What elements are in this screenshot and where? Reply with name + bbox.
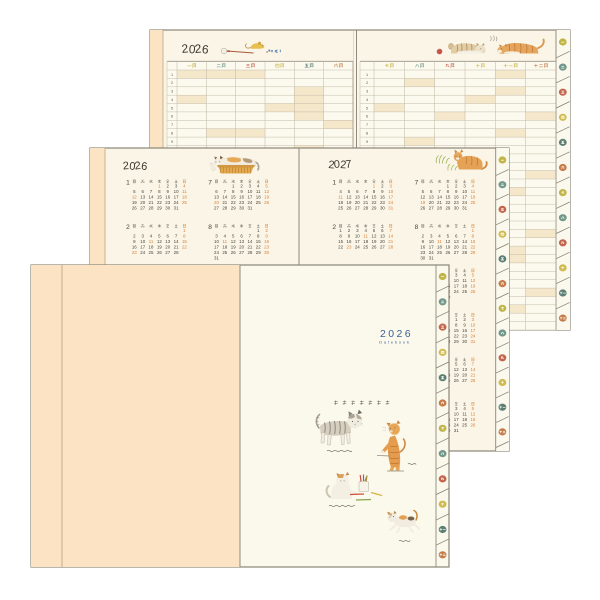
svg-text:16: 16 bbox=[454, 195, 459, 200]
svg-text:15: 15 bbox=[231, 195, 236, 200]
svg-text:10: 10 bbox=[214, 239, 219, 244]
svg-text:21: 21 bbox=[462, 244, 467, 249]
svg-text:24: 24 bbox=[454, 422, 459, 427]
svg-text:7: 7 bbox=[415, 180, 419, 187]
svg-text:15: 15 bbox=[157, 195, 162, 200]
svg-text:24: 24 bbox=[247, 200, 252, 205]
svg-text:21: 21 bbox=[149, 200, 154, 205]
svg-text:14: 14 bbox=[222, 195, 227, 200]
svg-text:16: 16 bbox=[462, 328, 467, 333]
svg-text:27: 27 bbox=[429, 205, 434, 210]
svg-text:18: 18 bbox=[462, 417, 467, 422]
svg-text:20: 20 bbox=[429, 200, 434, 205]
svg-text:28: 28 bbox=[222, 205, 227, 210]
svg-text:11: 11 bbox=[462, 278, 467, 283]
svg-text:19: 19 bbox=[264, 195, 269, 200]
svg-text:20: 20 bbox=[355, 200, 360, 205]
svg-text:13: 13 bbox=[454, 239, 459, 244]
svg-text:7: 7 bbox=[366, 123, 368, 127]
svg-text:2: 2 bbox=[332, 224, 336, 231]
svg-text:25: 25 bbox=[256, 200, 261, 205]
svg-text:10: 10 bbox=[388, 189, 393, 194]
svg-text:11: 11 bbox=[471, 189, 476, 194]
svg-text:23: 23 bbox=[454, 200, 459, 205]
svg-text:17: 17 bbox=[462, 195, 467, 200]
svg-text:5: 5 bbox=[366, 106, 368, 110]
svg-text:17: 17 bbox=[140, 244, 145, 249]
svg-text:22: 22 bbox=[454, 333, 459, 338]
svg-text:21: 21 bbox=[247, 244, 252, 249]
svg-text:10: 10 bbox=[462, 189, 467, 194]
svg-text:12: 12 bbox=[231, 239, 236, 244]
svg-text:12: 12 bbox=[132, 195, 137, 200]
svg-text:11: 11 bbox=[437, 239, 442, 244]
svg-text:24: 24 bbox=[174, 200, 179, 205]
svg-text:15: 15 bbox=[372, 195, 377, 200]
svg-text:10: 10 bbox=[429, 239, 434, 244]
svg-text:15: 15 bbox=[256, 239, 261, 244]
svg-text:20: 20 bbox=[239, 244, 244, 249]
svg-text:20: 20 bbox=[165, 244, 170, 249]
svg-text:28: 28 bbox=[462, 250, 467, 255]
svg-text:27: 27 bbox=[140, 205, 145, 210]
svg-text:19: 19 bbox=[372, 239, 377, 244]
svg-text:17: 17 bbox=[454, 417, 459, 422]
svg-text:17: 17 bbox=[470, 328, 475, 333]
svg-text:29: 29 bbox=[470, 250, 475, 255]
svg-text:17: 17 bbox=[174, 195, 179, 200]
svg-text:21: 21 bbox=[437, 200, 442, 205]
svg-text:23: 23 bbox=[132, 250, 137, 255]
svg-text:1: 1 bbox=[171, 73, 173, 77]
svg-text:29: 29 bbox=[157, 205, 162, 210]
svg-text:11: 11 bbox=[256, 189, 261, 194]
svg-text:27: 27 bbox=[380, 244, 385, 249]
svg-text:14: 14 bbox=[437, 195, 442, 200]
svg-text:16: 16 bbox=[347, 239, 352, 244]
svg-text:8: 8 bbox=[415, 224, 419, 231]
svg-text:24: 24 bbox=[355, 244, 360, 249]
svg-text:29: 29 bbox=[454, 339, 459, 344]
svg-text:23: 23 bbox=[420, 250, 425, 255]
svg-text:15: 15 bbox=[454, 328, 459, 333]
svg-text:4: 4 bbox=[366, 98, 368, 102]
svg-text:28: 28 bbox=[437, 205, 442, 210]
svg-text:23: 23 bbox=[239, 200, 244, 205]
svg-text:20: 20 bbox=[462, 373, 467, 378]
svg-text:22: 22 bbox=[256, 244, 261, 249]
svg-text:28: 28 bbox=[174, 250, 179, 255]
svg-text:29: 29 bbox=[445, 205, 450, 210]
svg-text:16: 16 bbox=[239, 195, 244, 200]
svg-text:20: 20 bbox=[140, 200, 145, 205]
svg-text:19: 19 bbox=[157, 244, 162, 249]
svg-text:30: 30 bbox=[239, 205, 244, 210]
svg-text:29: 29 bbox=[256, 250, 261, 255]
svg-text:31: 31 bbox=[462, 205, 467, 210]
svg-text:7: 7 bbox=[171, 123, 173, 127]
svg-text:23: 23 bbox=[462, 333, 467, 338]
svg-text:18: 18 bbox=[363, 239, 368, 244]
svg-text:26: 26 bbox=[470, 289, 475, 294]
svg-text:31: 31 bbox=[454, 428, 459, 433]
svg-text:18: 18 bbox=[470, 195, 475, 200]
svg-text:10: 10 bbox=[454, 278, 459, 283]
svg-text:14: 14 bbox=[470, 367, 475, 372]
svg-text:25: 25 bbox=[462, 422, 467, 427]
svg-text:24: 24 bbox=[454, 289, 459, 294]
svg-text:12: 12 bbox=[372, 234, 377, 239]
svg-text:13: 13 bbox=[429, 195, 434, 200]
svg-text:13: 13 bbox=[462, 367, 467, 372]
svg-text:28: 28 bbox=[363, 205, 368, 210]
svg-text:6: 6 bbox=[366, 115, 368, 119]
svg-text:12: 12 bbox=[264, 189, 269, 194]
svg-text:31: 31 bbox=[247, 205, 252, 210]
svg-text:18: 18 bbox=[462, 284, 467, 289]
svg-text:15: 15 bbox=[338, 239, 343, 244]
svg-text:22: 22 bbox=[445, 200, 450, 205]
svg-text:6: 6 bbox=[171, 115, 173, 119]
svg-text:30: 30 bbox=[264, 250, 269, 255]
svg-text:26: 26 bbox=[372, 244, 377, 249]
svg-text:26: 26 bbox=[420, 205, 425, 210]
svg-text:14: 14 bbox=[149, 195, 154, 200]
svg-text:8: 8 bbox=[208, 224, 212, 231]
svg-text:2026: 2026 bbox=[181, 41, 210, 57]
svg-text:10: 10 bbox=[355, 234, 360, 239]
svg-text:28: 28 bbox=[149, 205, 154, 210]
svg-text:8: 8 bbox=[171, 132, 173, 136]
svg-text:26: 26 bbox=[231, 250, 236, 255]
svg-text:12: 12 bbox=[470, 278, 475, 283]
svg-text:12: 12 bbox=[454, 367, 459, 372]
svg-text:12: 12 bbox=[420, 195, 425, 200]
svg-text:20: 20 bbox=[380, 239, 385, 244]
svg-text:20: 20 bbox=[454, 244, 459, 249]
svg-text:21: 21 bbox=[363, 200, 368, 205]
svg-text:22: 22 bbox=[338, 244, 343, 249]
svg-text:16: 16 bbox=[165, 195, 170, 200]
svg-text:14: 14 bbox=[247, 239, 252, 244]
svg-text:25: 25 bbox=[363, 244, 368, 249]
svg-text:27: 27 bbox=[239, 250, 244, 255]
svg-text:26: 26 bbox=[470, 422, 475, 427]
svg-text:25: 25 bbox=[149, 250, 154, 255]
svg-text:14: 14 bbox=[363, 195, 368, 200]
svg-text:17: 17 bbox=[454, 284, 459, 289]
svg-text:22: 22 bbox=[182, 244, 187, 249]
svg-text:29: 29 bbox=[231, 205, 236, 210]
svg-text:30: 30 bbox=[420, 255, 425, 260]
svg-text:28: 28 bbox=[388, 244, 393, 249]
svg-text:25: 25 bbox=[470, 200, 475, 205]
svg-text:14: 14 bbox=[174, 239, 179, 244]
svg-text:26: 26 bbox=[454, 378, 459, 383]
svg-text:30: 30 bbox=[380, 205, 385, 210]
svg-text:20: 20 bbox=[214, 200, 219, 205]
svg-text:12: 12 bbox=[470, 412, 475, 417]
svg-text:2: 2 bbox=[366, 81, 368, 85]
svg-text:18: 18 bbox=[182, 195, 187, 200]
svg-text:25: 25 bbox=[222, 250, 227, 255]
svg-text:27: 27 bbox=[355, 205, 360, 210]
svg-text:15: 15 bbox=[182, 239, 187, 244]
svg-text:19: 19 bbox=[445, 244, 450, 249]
svg-text:9: 9 bbox=[366, 140, 368, 144]
svg-text:27: 27 bbox=[165, 250, 170, 255]
svg-text:19: 19 bbox=[470, 284, 475, 289]
svg-text:22: 22 bbox=[231, 200, 236, 205]
svg-text:10: 10 bbox=[454, 412, 459, 417]
svg-text:31: 31 bbox=[174, 205, 179, 210]
svg-text:18: 18 bbox=[222, 244, 227, 249]
svg-text:23: 23 bbox=[347, 244, 352, 249]
svg-text:24: 24 bbox=[470, 333, 475, 338]
svg-text:18: 18 bbox=[256, 195, 261, 200]
svg-text:21: 21 bbox=[222, 200, 227, 205]
svg-text:17: 17 bbox=[355, 239, 360, 244]
svg-text:25: 25 bbox=[462, 289, 467, 294]
svg-text:11: 11 bbox=[363, 234, 368, 239]
svg-text:28: 28 bbox=[247, 250, 252, 255]
svg-text:2026: 2026 bbox=[380, 328, 413, 340]
svg-text:11: 11 bbox=[149, 239, 154, 244]
svg-text:30: 30 bbox=[454, 205, 459, 210]
svg-text:10: 10 bbox=[174, 189, 179, 194]
svg-text:18: 18 bbox=[338, 200, 343, 205]
svg-text:14: 14 bbox=[388, 234, 393, 239]
svg-text:13: 13 bbox=[165, 239, 170, 244]
svg-text:21: 21 bbox=[174, 244, 179, 249]
svg-text:17: 17 bbox=[214, 244, 219, 249]
svg-text:25: 25 bbox=[437, 250, 442, 255]
svg-text:21: 21 bbox=[388, 239, 393, 244]
svg-text:4: 4 bbox=[171, 98, 173, 102]
svg-text:18: 18 bbox=[149, 244, 154, 249]
svg-text:23: 23 bbox=[165, 200, 170, 205]
svg-text:27: 27 bbox=[214, 205, 219, 210]
svg-text:18: 18 bbox=[437, 244, 442, 249]
svg-text:31: 31 bbox=[429, 255, 434, 260]
svg-text:24: 24 bbox=[214, 250, 219, 255]
svg-text:16: 16 bbox=[420, 244, 425, 249]
svg-text:19: 19 bbox=[132, 200, 137, 205]
svg-text:15: 15 bbox=[470, 239, 475, 244]
svg-text:25: 25 bbox=[182, 200, 187, 205]
svg-text:23: 23 bbox=[264, 244, 269, 249]
svg-text:16: 16 bbox=[132, 244, 137, 249]
svg-text:2: 2 bbox=[126, 224, 130, 231]
svg-text:17: 17 bbox=[388, 195, 393, 200]
svg-text:19: 19 bbox=[454, 373, 459, 378]
svg-text:17: 17 bbox=[429, 244, 434, 249]
svg-text:2: 2 bbox=[171, 81, 173, 85]
svg-text:19: 19 bbox=[420, 200, 425, 205]
svg-text:11: 11 bbox=[182, 189, 187, 194]
svg-text:5: 5 bbox=[171, 106, 173, 110]
svg-text:27: 27 bbox=[454, 250, 459, 255]
svg-text:26: 26 bbox=[445, 250, 450, 255]
svg-text:15: 15 bbox=[445, 195, 450, 200]
svg-text:19: 19 bbox=[231, 244, 236, 249]
svg-text:19: 19 bbox=[347, 200, 352, 205]
svg-text:30: 30 bbox=[165, 205, 170, 210]
svg-text:1: 1 bbox=[332, 180, 336, 187]
svg-text:23: 23 bbox=[380, 200, 385, 205]
svg-text:10: 10 bbox=[140, 239, 145, 244]
svg-text:29: 29 bbox=[372, 205, 377, 210]
svg-text:21: 21 bbox=[470, 373, 475, 378]
svg-text:12: 12 bbox=[157, 239, 162, 244]
svg-text:26: 26 bbox=[347, 205, 352, 210]
svg-text:24: 24 bbox=[388, 200, 393, 205]
svg-text:1: 1 bbox=[366, 73, 368, 77]
svg-text:22: 22 bbox=[372, 200, 377, 205]
svg-text:24: 24 bbox=[140, 250, 145, 255]
svg-text:Datebook: Datebook bbox=[379, 340, 411, 345]
svg-text:17: 17 bbox=[247, 195, 252, 200]
svg-text:3: 3 bbox=[171, 90, 173, 94]
svg-text:13: 13 bbox=[239, 239, 244, 244]
svg-text:22: 22 bbox=[470, 244, 475, 249]
svg-text:26: 26 bbox=[132, 205, 137, 210]
svg-text:31: 31 bbox=[388, 205, 393, 210]
svg-text:11: 11 bbox=[338, 195, 343, 200]
svg-text:9: 9 bbox=[171, 140, 173, 144]
svg-text:14: 14 bbox=[462, 239, 467, 244]
svg-text:27: 27 bbox=[462, 378, 467, 383]
svg-text:13: 13 bbox=[140, 195, 145, 200]
svg-text:16: 16 bbox=[264, 239, 269, 244]
svg-text:25: 25 bbox=[338, 205, 343, 210]
svg-text:26: 26 bbox=[264, 200, 269, 205]
svg-text:24: 24 bbox=[429, 250, 434, 255]
svg-text:10: 10 bbox=[470, 323, 475, 328]
svg-text:11: 11 bbox=[223, 239, 228, 244]
svg-text:7: 7 bbox=[208, 180, 212, 187]
svg-text:12: 12 bbox=[445, 239, 450, 244]
svg-text:13: 13 bbox=[214, 195, 219, 200]
svg-text:11: 11 bbox=[462, 412, 467, 417]
svg-text:13: 13 bbox=[380, 234, 385, 239]
svg-text:31: 31 bbox=[470, 339, 475, 344]
svg-text:13: 13 bbox=[355, 195, 360, 200]
svg-text:31: 31 bbox=[214, 255, 219, 260]
svg-text:10: 10 bbox=[247, 189, 252, 194]
svg-text:26: 26 bbox=[157, 250, 162, 255]
svg-text:8: 8 bbox=[366, 132, 368, 136]
svg-text:28: 28 bbox=[470, 378, 475, 383]
svg-text:22: 22 bbox=[157, 200, 162, 205]
svg-text:30: 30 bbox=[462, 339, 467, 344]
svg-text:24: 24 bbox=[462, 200, 467, 205]
svg-text:1: 1 bbox=[126, 180, 130, 187]
svg-text:3: 3 bbox=[366, 90, 368, 94]
svg-text:12: 12 bbox=[347, 195, 352, 200]
svg-text:16: 16 bbox=[380, 195, 385, 200]
svg-text:19: 19 bbox=[470, 417, 475, 422]
